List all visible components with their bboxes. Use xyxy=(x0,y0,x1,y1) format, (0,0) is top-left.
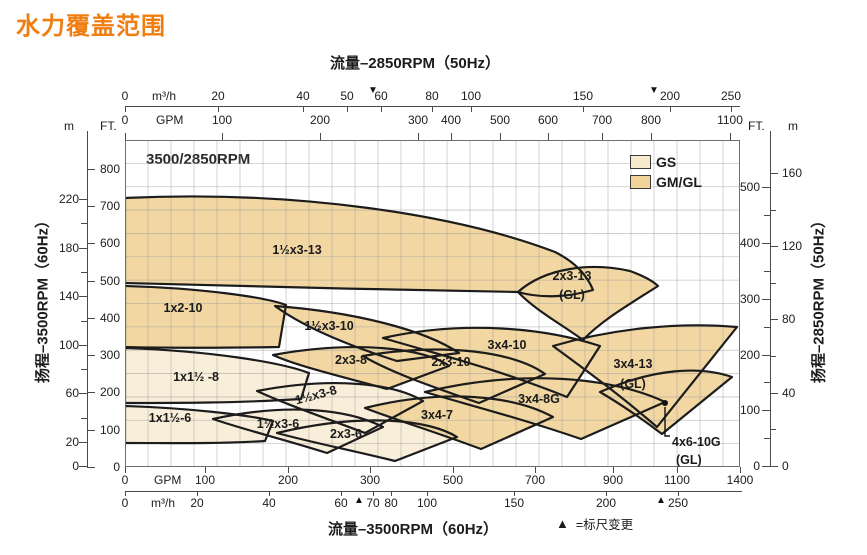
right-ft-tick-label: 400 xyxy=(734,237,760,249)
left-m-tick xyxy=(79,248,87,249)
bottom-gpm-tick-label: 0 xyxy=(122,474,129,486)
left-ft-tick-label: 700 xyxy=(96,200,120,212)
top-gpm-tick-label: 700 xyxy=(592,114,612,126)
envelope-label-2x3-10: 2x3-10 xyxy=(432,355,471,369)
legend-label-GM/GL: GM/GL xyxy=(656,174,702,190)
top-gpm-tick xyxy=(451,133,452,140)
top-gpm-tick-label: 500 xyxy=(490,114,510,126)
right-m-tick-label: 120 xyxy=(782,240,802,252)
top-gpm-unit: GPM xyxy=(156,114,183,126)
right-ft-minor-tick xyxy=(764,327,770,328)
left-m-tick-label: 0 xyxy=(46,460,79,472)
envelope-label-2x3-8: 2x3-8 xyxy=(335,353,367,367)
top-m3h-tick xyxy=(381,106,382,112)
top-gpm-tick-label: 0 xyxy=(122,114,129,126)
left-ft-tick-label: 600 xyxy=(96,237,120,249)
left-ft-tick-label: 300 xyxy=(96,349,120,361)
right-ft-tick xyxy=(762,299,770,300)
bottom-gpm-tick xyxy=(453,467,454,473)
envelope-label-3x4-7: 3x4-7 xyxy=(421,408,453,422)
left-m-tick-label: 60 xyxy=(46,387,79,399)
top-m3h-tick xyxy=(303,106,304,112)
top-gpm-tick xyxy=(125,133,126,140)
top-m3h-unit: m³/h xyxy=(152,90,176,102)
bottom-gpm-tick xyxy=(288,467,289,473)
bottom-m3h-tick-label: 70 xyxy=(366,497,379,509)
left-ft-tick xyxy=(87,169,95,170)
bottom-m3h-tick xyxy=(125,491,126,496)
left-ft-tick xyxy=(87,467,95,468)
bottom-m3h-tick xyxy=(391,491,392,496)
right-ft-tick xyxy=(762,466,770,467)
bottom-gpm-tick-label: 900 xyxy=(603,474,623,486)
left-ft-tick-label: 400 xyxy=(96,312,120,324)
top-gpm-tick xyxy=(651,133,652,140)
right-m-tick xyxy=(770,246,778,247)
left-axis-line xyxy=(87,131,88,467)
envelope-label-3x4-13: 3x4-13 xyxy=(614,357,653,371)
left-ft-tick xyxy=(87,206,95,207)
bottom-gpm-tick-label: 500 xyxy=(443,474,463,486)
left-ft-tick-label: 200 xyxy=(96,386,120,398)
legend-label-GS: GS xyxy=(656,154,676,170)
left-m-unit-header: m xyxy=(64,120,74,132)
bottom-m3h-tick-label: 80 xyxy=(384,497,397,509)
bottom-gpm-tick-label: 1100 xyxy=(664,474,690,486)
bottom-m3h-tick-label: 250 xyxy=(668,497,688,509)
bottom-gpm-tick xyxy=(205,467,206,473)
left-m-tick-label: 220 xyxy=(46,193,79,205)
left-m-tick xyxy=(79,442,87,443)
bottom-m3h-tick xyxy=(678,491,679,496)
bottom-gpm-tick-label: 100 xyxy=(195,474,215,486)
legend-swatch-GS xyxy=(630,155,651,169)
envelope-fill-1½x3-13 xyxy=(125,196,593,296)
left-ft-unit-header: FT. xyxy=(100,120,117,132)
bottom-m3h-tick-label: 40 xyxy=(262,497,275,509)
top-m3h-tick-label: 200 xyxy=(660,90,680,102)
left-ft-tick xyxy=(87,430,95,431)
right-ft-tick xyxy=(762,355,770,356)
top-axis-title: 流量–2850RPM（50Hz） xyxy=(330,52,500,73)
right-m-tick-label: 80 xyxy=(782,313,795,325)
left-ft-tick xyxy=(87,318,95,319)
left-m-tick-label: 100 xyxy=(46,339,79,351)
left-m-minor-tick xyxy=(81,369,87,370)
bottom-m3h-tick-label: 200 xyxy=(596,497,616,509)
legend-row: GM/GL xyxy=(630,172,702,192)
top-m3h-tick xyxy=(218,106,219,112)
left-m-minor-tick xyxy=(81,418,87,419)
top-m3h-tick xyxy=(670,106,671,112)
right-ft-tick-label: 300 xyxy=(734,293,760,305)
top-m3h-tick-label: 50 xyxy=(340,90,353,102)
page-title: 水力覆盖范围 xyxy=(16,6,166,41)
top-gpm-tick-label: 300 xyxy=(408,114,428,126)
left-m-tick xyxy=(79,345,87,346)
left-ft-tick xyxy=(87,355,95,356)
bottom-m3h-tick-label: 150 xyxy=(504,497,524,509)
top-gpm-tick-label: 100 xyxy=(212,114,232,126)
top-m3h-tick xyxy=(432,106,433,112)
right-ft-tick xyxy=(762,243,770,244)
right-ft-tick-label: 200 xyxy=(734,349,760,361)
left-m-minor-tick xyxy=(81,223,87,224)
right-ft-tick xyxy=(762,187,770,188)
right-ft-tick-label: 100 xyxy=(734,404,760,416)
left-ft-tick-label: 500 xyxy=(96,275,120,287)
bottom-m3h-tick xyxy=(427,491,428,496)
top-m3h-tick-label: 150 xyxy=(573,90,593,102)
top-gpm-tick-label: 200 xyxy=(310,114,330,126)
envelope-label-3x4-8G: 3x4-8G xyxy=(518,392,560,406)
left-m-minor-tick xyxy=(81,321,87,322)
scale-change-marker-down: ▼ xyxy=(368,86,378,96)
scale-change-marker-up: ▲ xyxy=(354,496,364,506)
right-m-tick xyxy=(770,393,778,394)
top-gpm-tick xyxy=(602,133,603,140)
envelope-label-2x3-6: 2x3-6 xyxy=(330,427,362,441)
envelope-label-1x1½ -8: 1x1½ -8 xyxy=(173,370,219,384)
right-m-minor-tick xyxy=(770,356,776,357)
top-gpm-tick xyxy=(548,133,549,140)
envelope-fill-1x2-10 xyxy=(125,286,286,348)
right-ft-minor-tick xyxy=(764,382,770,383)
bottom-m3h-tick-label: 60 xyxy=(334,497,347,509)
top-gpm-tick-label: 400 xyxy=(441,114,461,126)
hydraulic-coverage-chart: 水力覆盖范围 流量–2850RPM（50Hz） 流量–3500RPM（60Hz）… xyxy=(0,0,867,555)
left-ft-tick xyxy=(87,281,95,282)
bottom-gpm-unit: GPM xyxy=(154,474,181,486)
bottom-m3h-tick-label: 0 xyxy=(122,497,129,509)
left-ft-tick xyxy=(87,392,95,393)
top-m3h-tick xyxy=(347,106,348,112)
left-m-tick xyxy=(79,393,87,394)
bottom-m3h-axis-line xyxy=(125,491,742,492)
top-m3h-tick xyxy=(471,106,472,112)
top-m3h-tick xyxy=(583,106,584,112)
top-m3h-tick-label: 40 xyxy=(296,90,309,102)
bottom-m3h-tick xyxy=(197,491,198,496)
envelope-label-1x2-10: 1x2-10 xyxy=(164,301,203,315)
envelope-sublabel-2x3-13: (GL) xyxy=(559,288,585,302)
bottom-gpm-tick xyxy=(125,467,126,473)
envelope-label-4x6-10G: 4x6-10G xyxy=(672,435,721,449)
bottom-m3h-tick xyxy=(606,491,607,496)
right-ft-tick xyxy=(762,410,770,411)
bottom-gpm-tick xyxy=(370,467,371,473)
left-m-tick xyxy=(79,296,87,297)
top-m3h-tick-label: 0 xyxy=(122,90,129,102)
bottom-m3h-tick xyxy=(341,491,342,496)
right-m-tick xyxy=(770,319,778,320)
footnote-text: =标尺变更 xyxy=(576,514,633,533)
top-gpm-tick-label: 600 xyxy=(538,114,558,126)
top-gpm-tick xyxy=(500,133,501,140)
scale-change-marker-up: ▲ xyxy=(656,496,666,506)
right-ft-minor-tick xyxy=(764,438,770,439)
right-m-tick-label: 0 xyxy=(782,460,789,472)
bottom-gpm-tick-label: 1400 xyxy=(727,474,754,486)
right-m-minor-tick xyxy=(770,210,776,211)
bottom-gpm-tick-label: 200 xyxy=(278,474,298,486)
left-ft-tick-label: 800 xyxy=(96,163,120,175)
top-m3h-tick-label: 20 xyxy=(211,90,224,102)
envelope-label-1½x3-6: 1½x3-6 xyxy=(257,417,299,431)
top-m3h-tick xyxy=(125,106,126,112)
envelope-dot-4x6-10G xyxy=(662,400,668,406)
right-ft-minor-tick xyxy=(764,215,770,216)
envelope-label-1x1½-6: 1x1½-6 xyxy=(149,411,191,425)
right-m-unit-header: m xyxy=(788,120,798,132)
bottom-m3h-tick xyxy=(269,491,270,496)
legend-swatch-GM/GL xyxy=(630,175,651,189)
bottom-gpm-tick-label: 700 xyxy=(525,474,545,486)
right-axis-title: 扬程–2850RPM（50Hz） xyxy=(808,213,829,383)
bottom-gpm-tick xyxy=(677,467,678,473)
left-m-minor-tick xyxy=(81,272,87,273)
envelope-sublabel-3x4-13: (GL) xyxy=(620,377,646,391)
right-m-minor-tick xyxy=(770,283,776,284)
left-m-tick xyxy=(79,466,87,467)
legend-row: GS xyxy=(630,152,702,172)
right-axis-line xyxy=(770,131,771,466)
bottom-gpm-tick-label: 300 xyxy=(360,474,380,486)
right-ft-tick-label: 0 xyxy=(734,460,760,472)
right-m-tick xyxy=(770,173,778,174)
top-gpm-tick xyxy=(418,133,419,140)
left-ft-tick-label: 100 xyxy=(96,424,120,436)
right-m-tick-label: 160 xyxy=(782,167,802,179)
right-m-tick-label: 40 xyxy=(782,387,795,399)
envelope-label-1½x3-10: 1½x3-10 xyxy=(304,319,353,333)
top-gpm-tick xyxy=(730,133,731,140)
top-gpm-tick xyxy=(320,133,321,140)
left-m-tick xyxy=(79,199,87,200)
scale-change-footnote: ▲ =标尺变更 xyxy=(556,514,633,533)
envelope-label-1½x3-13: 1½x3-13 xyxy=(272,243,321,257)
left-ft-tick-label: 0 xyxy=(96,461,120,473)
right-ft-minor-tick xyxy=(764,271,770,272)
top-gpm-tick xyxy=(222,133,223,140)
top-m3h-tick-label: 100 xyxy=(461,90,481,102)
bottom-m3h-tick xyxy=(514,491,515,496)
top-gpm-tick-label: 1100 xyxy=(717,114,743,126)
scale-change-marker-down: ▼ xyxy=(649,86,659,96)
envelope-sublabel-4x6-10G: (GL) xyxy=(676,453,702,467)
right-m-minor-tick xyxy=(770,429,776,430)
bottom-m3h-tick xyxy=(373,491,374,496)
right-ft-unit-header: FT. xyxy=(748,120,765,132)
bottom-m3h-tick-label: 20 xyxy=(190,497,203,509)
bottom-gpm-tick xyxy=(613,467,614,473)
bottom-m3h-tick-label: 100 xyxy=(417,497,437,509)
right-ft-tick-label: 500 xyxy=(734,181,760,193)
bottom-gpm-tick xyxy=(535,467,536,473)
right-m-tick xyxy=(770,466,778,467)
bottom-axis-title: 流量–3500RPM（60Hz） xyxy=(328,518,498,539)
left-m-tick-label: 180 xyxy=(46,242,79,254)
bottom-m3h-unit: m³/h xyxy=(151,497,175,509)
top-m3h-tick-label: 80 xyxy=(425,90,438,102)
envelope-label-2x3-13: 2x3-13 xyxy=(553,269,592,283)
top-m3h-tick-label: 250 xyxy=(721,90,741,102)
left-m-tick-label: 20 xyxy=(46,436,79,448)
envelope-label-3x4-10: 3x4-10 xyxy=(488,338,527,352)
legend: GSGM/GL xyxy=(630,152,702,192)
triangle-marker-icon: ▲ xyxy=(556,516,569,531)
top-m3h-tick xyxy=(731,106,732,112)
left-ft-tick xyxy=(87,243,95,244)
top-gpm-tick-label: 800 xyxy=(641,114,661,126)
left-m-tick-label: 140 xyxy=(46,290,79,302)
